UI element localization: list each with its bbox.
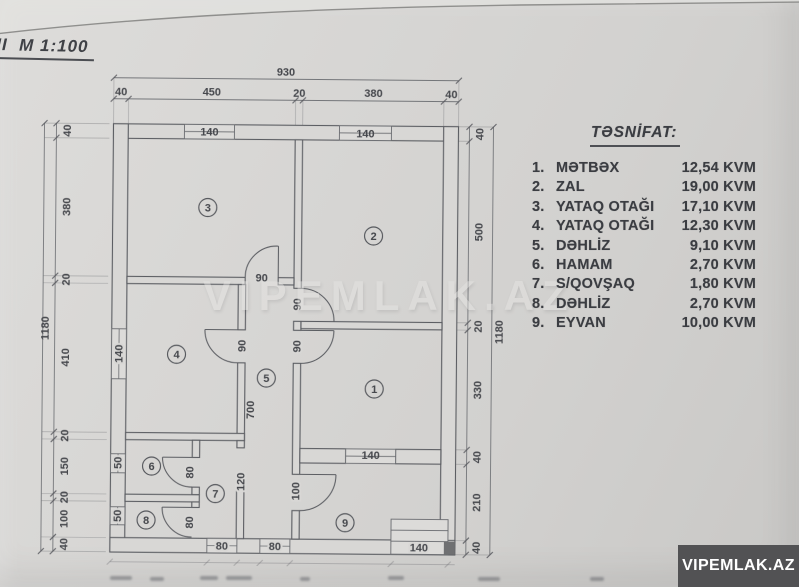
legend-row-name: MƏTBƏX <box>556 160 668 176</box>
dim-top-4: 40 <box>445 89 457 101</box>
dim-window-room8: 50 <box>112 510 124 522</box>
legend-row-num: 5. <box>532 238 556 254</box>
dim-right-2: 20 <box>473 320 485 332</box>
wall-exterior-top <box>113 124 458 142</box>
steps-corner-block <box>444 542 455 555</box>
wall-room3-bottom-a <box>127 276 245 284</box>
dim-right-3: 330 <box>472 381 484 399</box>
dim-window-room3: 140 <box>200 126 218 138</box>
legend-row: 5.DƏHLİZ9,10 KVM <box>532 238 756 257</box>
legend-row: 4.YATAQ OTAĞI12,30 KVM <box>532 218 756 237</box>
dim-door-room1: 90 <box>292 340 304 352</box>
dim-door-room4: 90 <box>236 340 248 352</box>
svg-text:6: 6 <box>148 461 154 473</box>
dim-right-overall: 1180 <box>494 320 506 344</box>
legend-row-name: DƏHLİZ <box>556 296 668 312</box>
dim-left-6: 20 <box>59 491 71 503</box>
legend-row: 8.DƏHLİZ2,70 KVM <box>532 296 756 315</box>
legend-row-name: ZAL <box>556 179 668 195</box>
dim-right-5: 210 <box>471 493 483 511</box>
svg-text:1: 1 <box>371 384 377 396</box>
dim-left-2: 20 <box>61 273 73 285</box>
floor-plan-drawing: 930 40 450 20 380 40 1180 40 380 20 410 … <box>38 64 507 568</box>
dim-left-1: 380 <box>61 198 73 216</box>
dim-top-overall: 930 <box>277 67 295 79</box>
wall-room6-room7-b <box>192 487 199 495</box>
room-number-6: 6 <box>142 457 160 475</box>
legend-row: 7.S/QOVŞAQ1,80 KVM <box>532 276 756 295</box>
room-numbers: 1 2 3 4 5 6 7 8 9 <box>137 198 385 532</box>
legend-row-num: 7. <box>532 276 556 292</box>
legend-row-area: 2,70 KVM <box>668 296 756 312</box>
wall-room1-bottom-b <box>396 449 441 464</box>
dim-top-1: 450 <box>203 86 221 98</box>
dim-left-3: 410 <box>60 348 72 366</box>
wall-room3-bottom-b <box>278 278 294 285</box>
brand-badge: VIPEMLAK.AZ <box>678 545 799 587</box>
dim-left-overall: 1180 <box>40 316 52 340</box>
legend-row: 9.EYVAN10,00 KVM <box>532 315 756 334</box>
dim-window-room6: 50 <box>113 457 125 469</box>
dim-wc-width: 120 <box>235 473 247 491</box>
dim-hall-length: 700 <box>245 401 257 419</box>
legend-row-name: EYVAN <box>556 315 668 331</box>
svg-text:3: 3 <box>205 203 211 215</box>
wall-room1-bottom-a <box>300 448 346 463</box>
dimension-lines <box>38 74 497 568</box>
wall-hall-right-a <box>294 321 301 330</box>
room-number-2: 2 <box>364 227 382 245</box>
legend-row-area: 12,54 KVM <box>668 160 756 176</box>
legend-row-num: 3. <box>532 199 556 215</box>
legend-row: 1.MƏTBƏX12,54 KVM <box>532 160 756 179</box>
room-number-7: 7 <box>206 485 224 503</box>
room-number-9: 9 <box>336 514 354 532</box>
room-number-5: 5 <box>257 369 275 387</box>
legend-row-area: 17,10 KVM <box>668 199 756 215</box>
dim-door-room2: 90 <box>292 298 304 310</box>
dim-door-room8: 80 <box>184 516 196 528</box>
scale-title: II M 1:100 <box>0 35 95 61</box>
legend-row-name: HAMAM <box>556 257 668 273</box>
wall-hall-right-c <box>292 511 300 540</box>
paper-edge-highlight <box>0 0 799 34</box>
dim-right-1: 500 <box>474 223 486 241</box>
dim-right-0: 40 <box>474 128 486 140</box>
legend-row-area: 2,70 KVM <box>668 257 756 273</box>
wall-room4-bottom <box>126 432 245 440</box>
svg-text:5: 5 <box>263 373 269 385</box>
legend-row-area: 1,80 KVM <box>668 276 756 292</box>
wall-room4-right-b <box>237 363 245 441</box>
door-room2-arc <box>301 288 334 321</box>
dim-window-room1: 140 <box>361 450 379 462</box>
dim-left-7: 100 <box>59 510 71 528</box>
dim-left-5: 150 <box>59 457 71 475</box>
legend-row-num: 6. <box>532 257 556 273</box>
dim-bottom-opening-1: 80 <box>216 541 228 553</box>
dim-door-room3: 90 <box>256 272 268 284</box>
legend-row-area: 19,00 KVM <box>668 179 756 195</box>
svg-text:4: 4 <box>173 349 180 361</box>
legend-row-num: 2. <box>532 179 556 195</box>
wall-room7-right-a <box>237 441 244 448</box>
legend-row-num: 4. <box>532 218 556 234</box>
legend-title: TƏSNİFAT: <box>590 124 680 147</box>
legend-row: 3.YATAQ OTAĞI17,10 KVM <box>532 199 756 218</box>
wall-room2-bottom <box>301 321 442 330</box>
wall-room3-room2-divider <box>294 140 303 289</box>
dim-top-2: 20 <box>293 88 305 100</box>
room-number-1: 1 <box>365 380 383 398</box>
legend-row-area: 10,00 KVM <box>668 315 756 331</box>
dim-top-3: 380 <box>364 88 382 100</box>
dim-door-room9: 100 <box>290 482 302 500</box>
room-number-3: 3 <box>199 198 217 216</box>
legend-row-num: 9. <box>532 315 556 331</box>
dim-window-room2: 140 <box>356 128 374 140</box>
legend-row-area: 9,10 KVM <box>668 238 756 254</box>
door-room1-arc <box>301 330 334 363</box>
legend-row-num: 1. <box>532 160 556 176</box>
wall-room6-room8 <box>125 494 199 502</box>
wall-room4-right-a <box>238 285 246 330</box>
dim-window-room4: 140 <box>113 345 125 363</box>
legend: TƏSNİFAT: 1.MƏTBƏX12,54 KVM 2.ZAL19,00 K… <box>532 124 756 335</box>
paper-edge-curve <box>0 2 799 34</box>
scanned-floor-plan-page: II M 1:100 <box>0 0 799 587</box>
dim-left-8: 40 <box>58 538 70 550</box>
svg-text:2: 2 <box>370 231 376 243</box>
door-room9-arc <box>299 474 336 511</box>
legend-row: 2.ZAL19,00 KVM <box>532 179 756 198</box>
door-room4-arc <box>205 330 238 363</box>
legend-row-name: S/QOVŞAQ <box>556 276 668 292</box>
legend-row-name: YATAQ OTAĞI <box>556 218 668 234</box>
legend-rows: 1.MƏTBƏX12,54 KVM 2.ZAL19,00 KVM 3.YATAQ… <box>532 160 756 335</box>
wall-exterior-right <box>440 127 459 555</box>
legend-row: 6.HAMAM2,70 KVM <box>532 257 756 276</box>
dim-door-room6: 80 <box>184 466 196 478</box>
legend-row-name: DƏHLİZ <box>556 238 668 254</box>
walls <box>110 124 459 555</box>
legend-row-area: 12,30 KVM <box>668 218 756 234</box>
dim-bottom-opening-2: 80 <box>269 541 281 553</box>
svg-text:8: 8 <box>143 515 149 527</box>
svg-text:7: 7 <box>212 489 218 501</box>
room-number-8: 8 <box>137 511 155 529</box>
dim-right-6: 40 <box>471 542 483 554</box>
dim-left-4: 20 <box>59 429 71 441</box>
wall-room6-room7-a <box>192 440 200 457</box>
legend-row-num: 8. <box>532 296 556 312</box>
dim-top-0: 40 <box>115 86 127 98</box>
dim-left-0: 40 <box>62 124 74 136</box>
windows <box>110 124 399 555</box>
wall-room7-room8 <box>192 502 199 508</box>
dim-right-4: 40 <box>472 451 484 463</box>
dim-entry-steps: 140 <box>410 542 428 554</box>
svg-text:9: 9 <box>342 518 348 530</box>
legend-row-name: YATAQ OTAĞI <box>556 199 668 215</box>
room-number-4: 4 <box>167 345 185 363</box>
